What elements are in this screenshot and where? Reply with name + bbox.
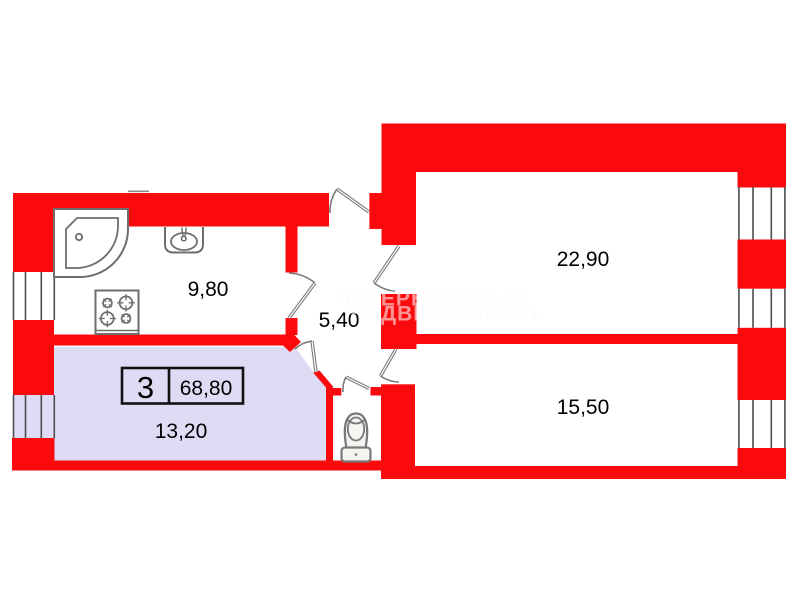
svg-text:9,80: 9,80: [188, 278, 229, 301]
svg-text:НЕДВИЖИМОСТЬ: НЕДВИЖИМОСТЬ: [350, 303, 547, 326]
svg-text:68,80: 68,80: [180, 377, 233, 400]
svg-text:15,50: 15,50: [557, 396, 610, 419]
svg-text:22,90: 22,90: [557, 248, 610, 271]
svg-text:13,20: 13,20: [155, 420, 208, 443]
svg-text:3: 3: [137, 370, 154, 405]
